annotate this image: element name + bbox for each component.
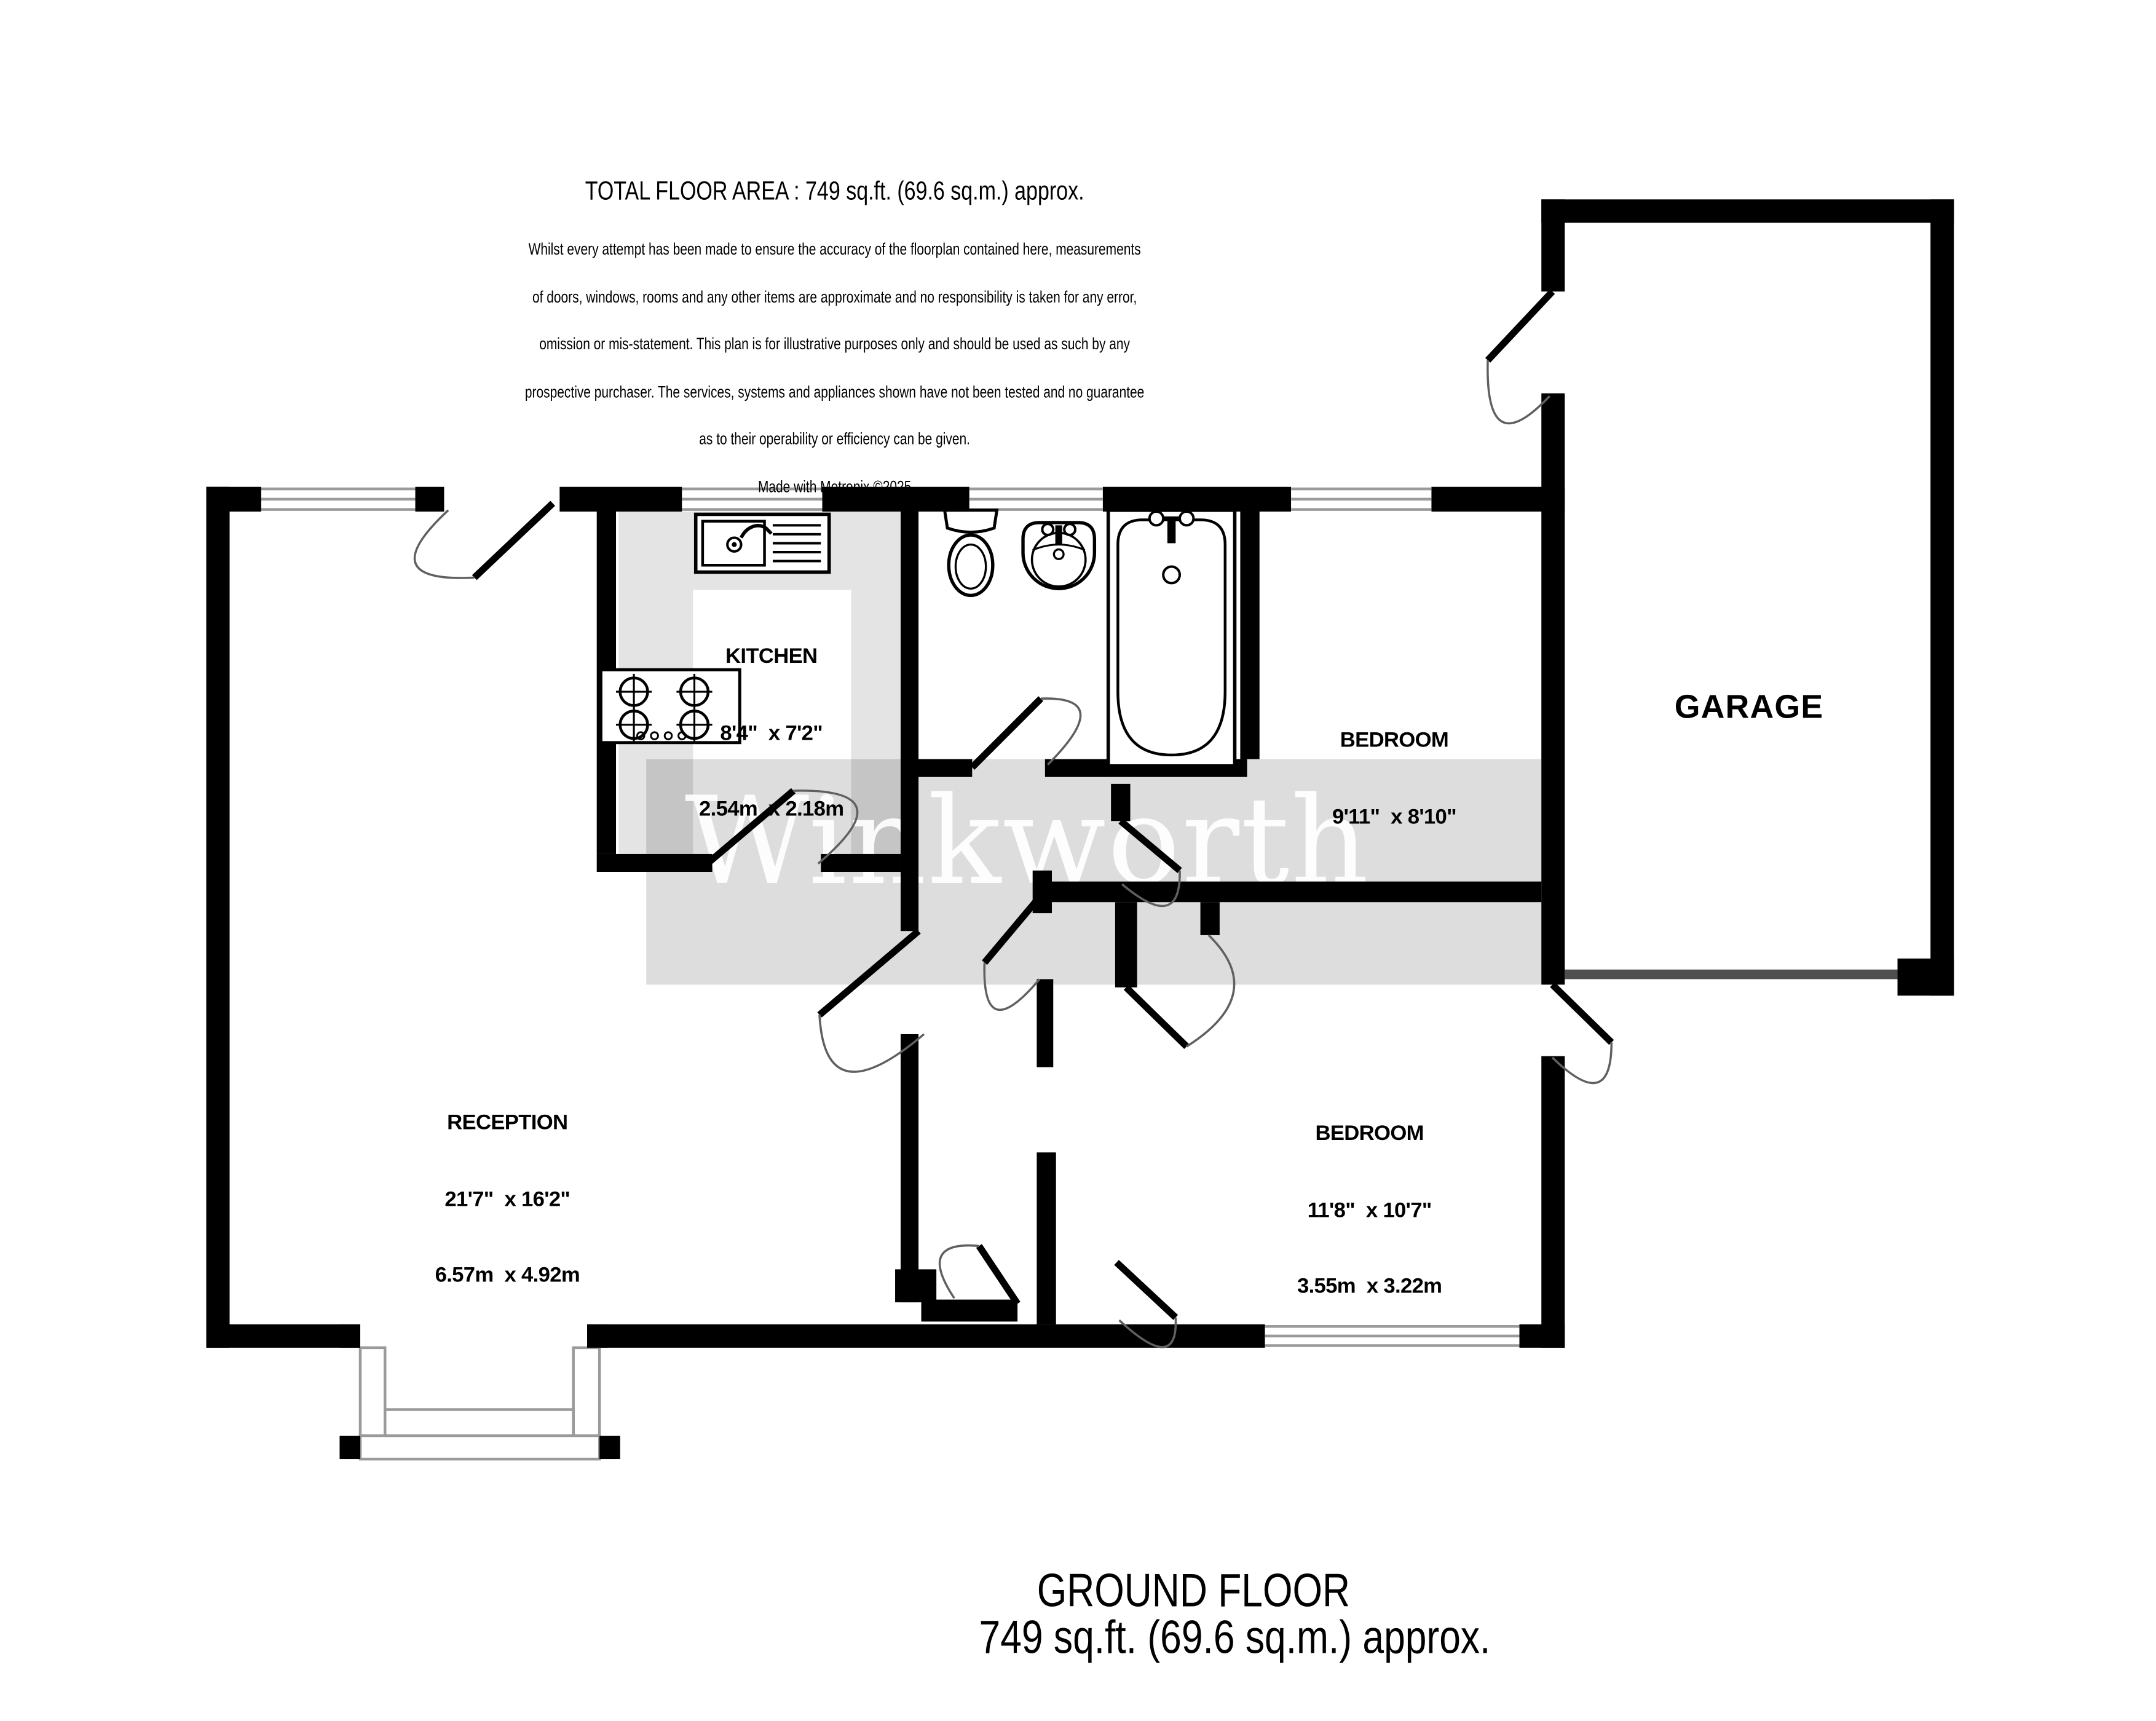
room-dims-imperial: 8'4" x 7'2" [699,721,843,746]
garage-side-door-arc [1488,360,1550,424]
disclaimer-line: of doors, windows, rooms and any other i… [525,290,1144,306]
total-floor-area-title: TOTAL FLOOR AREA : 749 sq.ft. (69.6 sq.m… [585,178,1084,208]
disclaimer-line: as to their operability or efficiency ca… [525,432,1144,448]
bedroom2-label: BEDROOM 11'8" x 10'7" 3.55m x 3.22m [1297,1071,1442,1351]
room-dims-metric: 3.55m x 3.22m [1297,1275,1442,1300]
room-dims-imperial: 9'11" x 8'10" [1322,805,1466,831]
bedroom1-window [1291,487,1431,512]
room-name: BEDROOM [1297,1122,1442,1147]
disclaimer-text: Whilst every attempt has been made to en… [525,210,1144,526]
room-dims-imperial: 21'7" x 16'2" [435,1187,580,1213]
garage-side-door-leaf [1488,291,1552,360]
ground-floor-label: GROUND FLOOR [1037,1565,1350,1618]
floorplan-page: { "header": { "title": "TOTAL FLOOR AREA… [0,0,2156,1721]
closet-door-arc [940,1246,979,1299]
rear-door-leaf [1552,984,1611,1042]
reception-label: RECEPTION 21'7" x 16'2" 6.57m x 4.92m [435,1060,580,1340]
footer-area-label: 749 sq.ft. (69.6 sq.m.) approx. [979,1612,1491,1665]
closet-door-leaf [979,1246,1017,1304]
entrance-door-arc [414,510,474,578]
room-dims-metric: 2.54m x 2.18m [699,797,843,823]
metropix-credit: Made with Metropix ©2025 [525,479,1144,495]
bathroom-door-leaf [972,698,1041,767]
room-name: BEDROOM [1322,729,1466,754]
room-name: RECEPTION [435,1111,580,1136]
disclaimer-line: Whilst every attempt has been made to en… [525,242,1144,258]
floorplan-stage: Winkworth [0,0,2156,1720]
room-dims-metric: 6.57m x 4.92m [435,1264,580,1289]
reception-window [261,487,416,512]
room-dims-metric: 3.03m x 2.69m [1322,882,1466,907]
basin-icon [1023,523,1094,588]
garage-door-line [1565,970,1897,979]
bathroom-door-arc [1041,698,1080,765]
bedroom2-door-leaf [1126,987,1187,1046]
kitchen-label: KITCHEN 8'4" x 7'2" 2.54m x 2.18m [699,594,843,874]
bedroom2-closet-door-leaf [1116,1262,1175,1317]
bathtub-icon [1108,510,1235,766]
room-name: KITCHEN [699,645,843,670]
garage-label: GARAGE [1675,689,1823,728]
bay-window [339,1324,620,1459]
room-dims-imperial: 11'8" x 10'7" [1297,1198,1442,1224]
disclaimer-line: prospective purchaser. The services, sys… [525,384,1144,400]
bedroom1-label: BEDROOM 9'11" x 8'10" 3.03m x 2.69m [1322,678,1466,958]
disclaimer-line: omission or mis-statement. This plan is … [525,337,1144,353]
